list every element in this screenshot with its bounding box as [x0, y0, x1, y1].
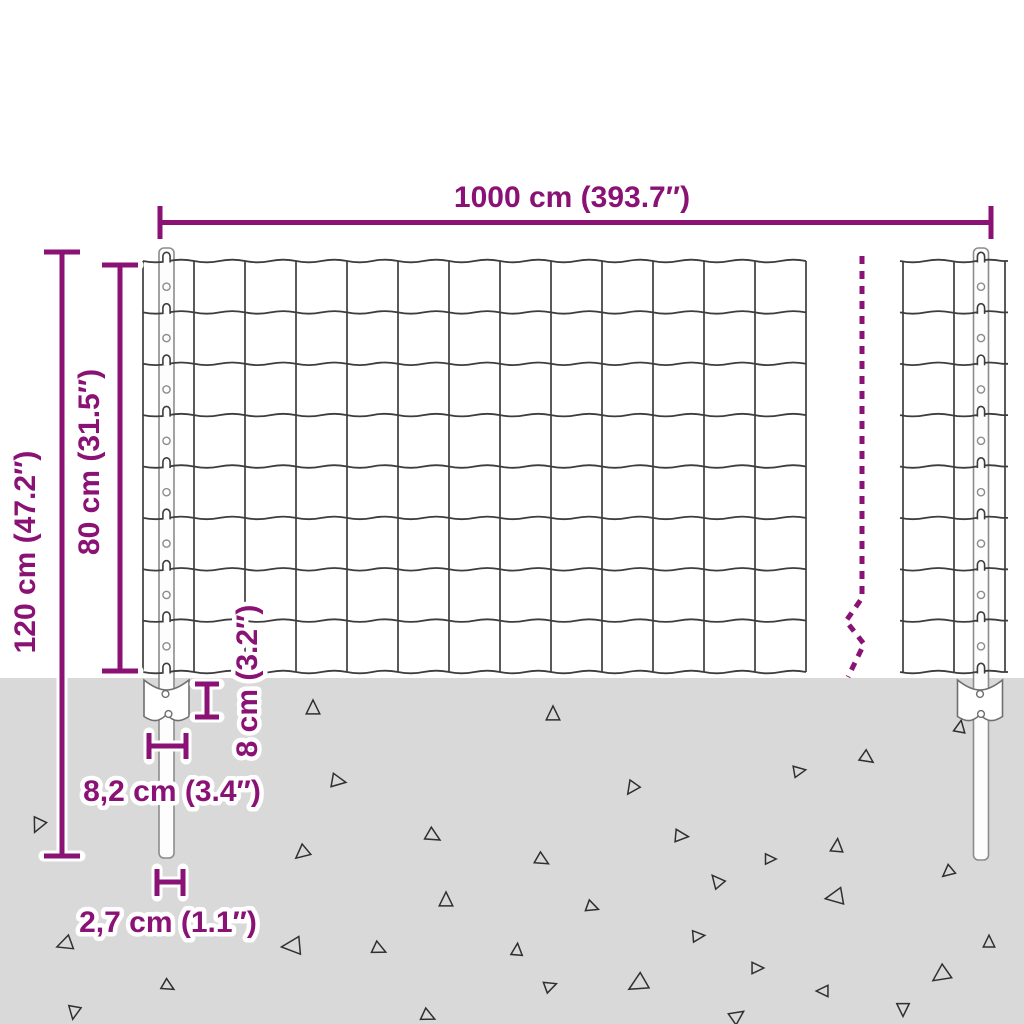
plate-hole: [978, 711, 985, 718]
wire-hook: [163, 663, 170, 673]
post-hole: [163, 335, 170, 342]
wire-hook: [977, 663, 984, 673]
wire-hook: [163, 304, 170, 314]
wire-hook: [977, 406, 984, 416]
post-hole: [977, 489, 984, 496]
wire-hook: [163, 561, 170, 571]
wire-hook: [977, 458, 984, 468]
dim-plate-width-label: 8,2 cm (3.4″): [83, 775, 261, 808]
wire-hook: [163, 252, 170, 262]
plate-hole: [165, 711, 172, 718]
post-hole: [977, 540, 984, 547]
post-hole: [977, 386, 984, 393]
post-hole: [163, 283, 170, 290]
wire-horizontal: [143, 517, 806, 520]
post-hole: [163, 540, 170, 547]
wire-hook: [977, 304, 984, 314]
fence-dimension-diagram: 1000 cm (393.7″) 120 cm (47.2″) 80 cm (3…: [0, 0, 1024, 1024]
dim-fence-height-label: 80 cm (31.5″): [73, 369, 106, 555]
wire-horizontal: [143, 568, 806, 571]
post-hole: [163, 437, 170, 444]
dim-plate-height-label: 8 cm (3.2″): [231, 605, 264, 758]
wire-horizontal: [143, 363, 806, 366]
post-hole: [977, 335, 984, 342]
wire-hook: [163, 406, 170, 416]
post-hole: [163, 386, 170, 393]
wire-hook: [977, 561, 984, 571]
wire-hook: [977, 509, 984, 519]
dim-width: 1000 cm (393.7″): [160, 181, 991, 239]
post-hole: [977, 591, 984, 598]
post-hole: [977, 283, 984, 290]
post-hole: [163, 489, 170, 496]
wire-hook: [977, 252, 984, 262]
post-hole: [977, 643, 984, 650]
wire-horizontal: [143, 465, 806, 468]
plate-hole: [977, 691, 984, 698]
post-hole: [163, 591, 170, 598]
wire-hook: [163, 509, 170, 519]
post-hole: [977, 437, 984, 444]
plate-hole: [162, 691, 169, 698]
post-hole: [163, 643, 170, 650]
wire-hook: [977, 612, 984, 622]
wire-hook: [163, 458, 170, 468]
wire-horizontal: [900, 260, 1008, 263]
wire-horizontal: [143, 311, 806, 314]
wire-mesh: [143, 252, 1008, 673]
wire-hook: [163, 355, 170, 365]
dim-width-label: 1000 cm (393.7″): [454, 181, 690, 214]
wire-hook: [977, 355, 984, 365]
dim-post-width-label: 2,7 cm (1.1″): [79, 906, 257, 939]
dim-total-height-label: 120 cm (47.2″): [9, 451, 42, 654]
wire-hook: [163, 612, 170, 622]
break-line: [846, 256, 864, 677]
wire-horizontal: [143, 260, 806, 263]
ground: [0, 678, 1024, 1024]
wire-horizontal: [143, 414, 806, 417]
dim-fence-height: 80 cm (31.5″): [73, 265, 138, 671]
